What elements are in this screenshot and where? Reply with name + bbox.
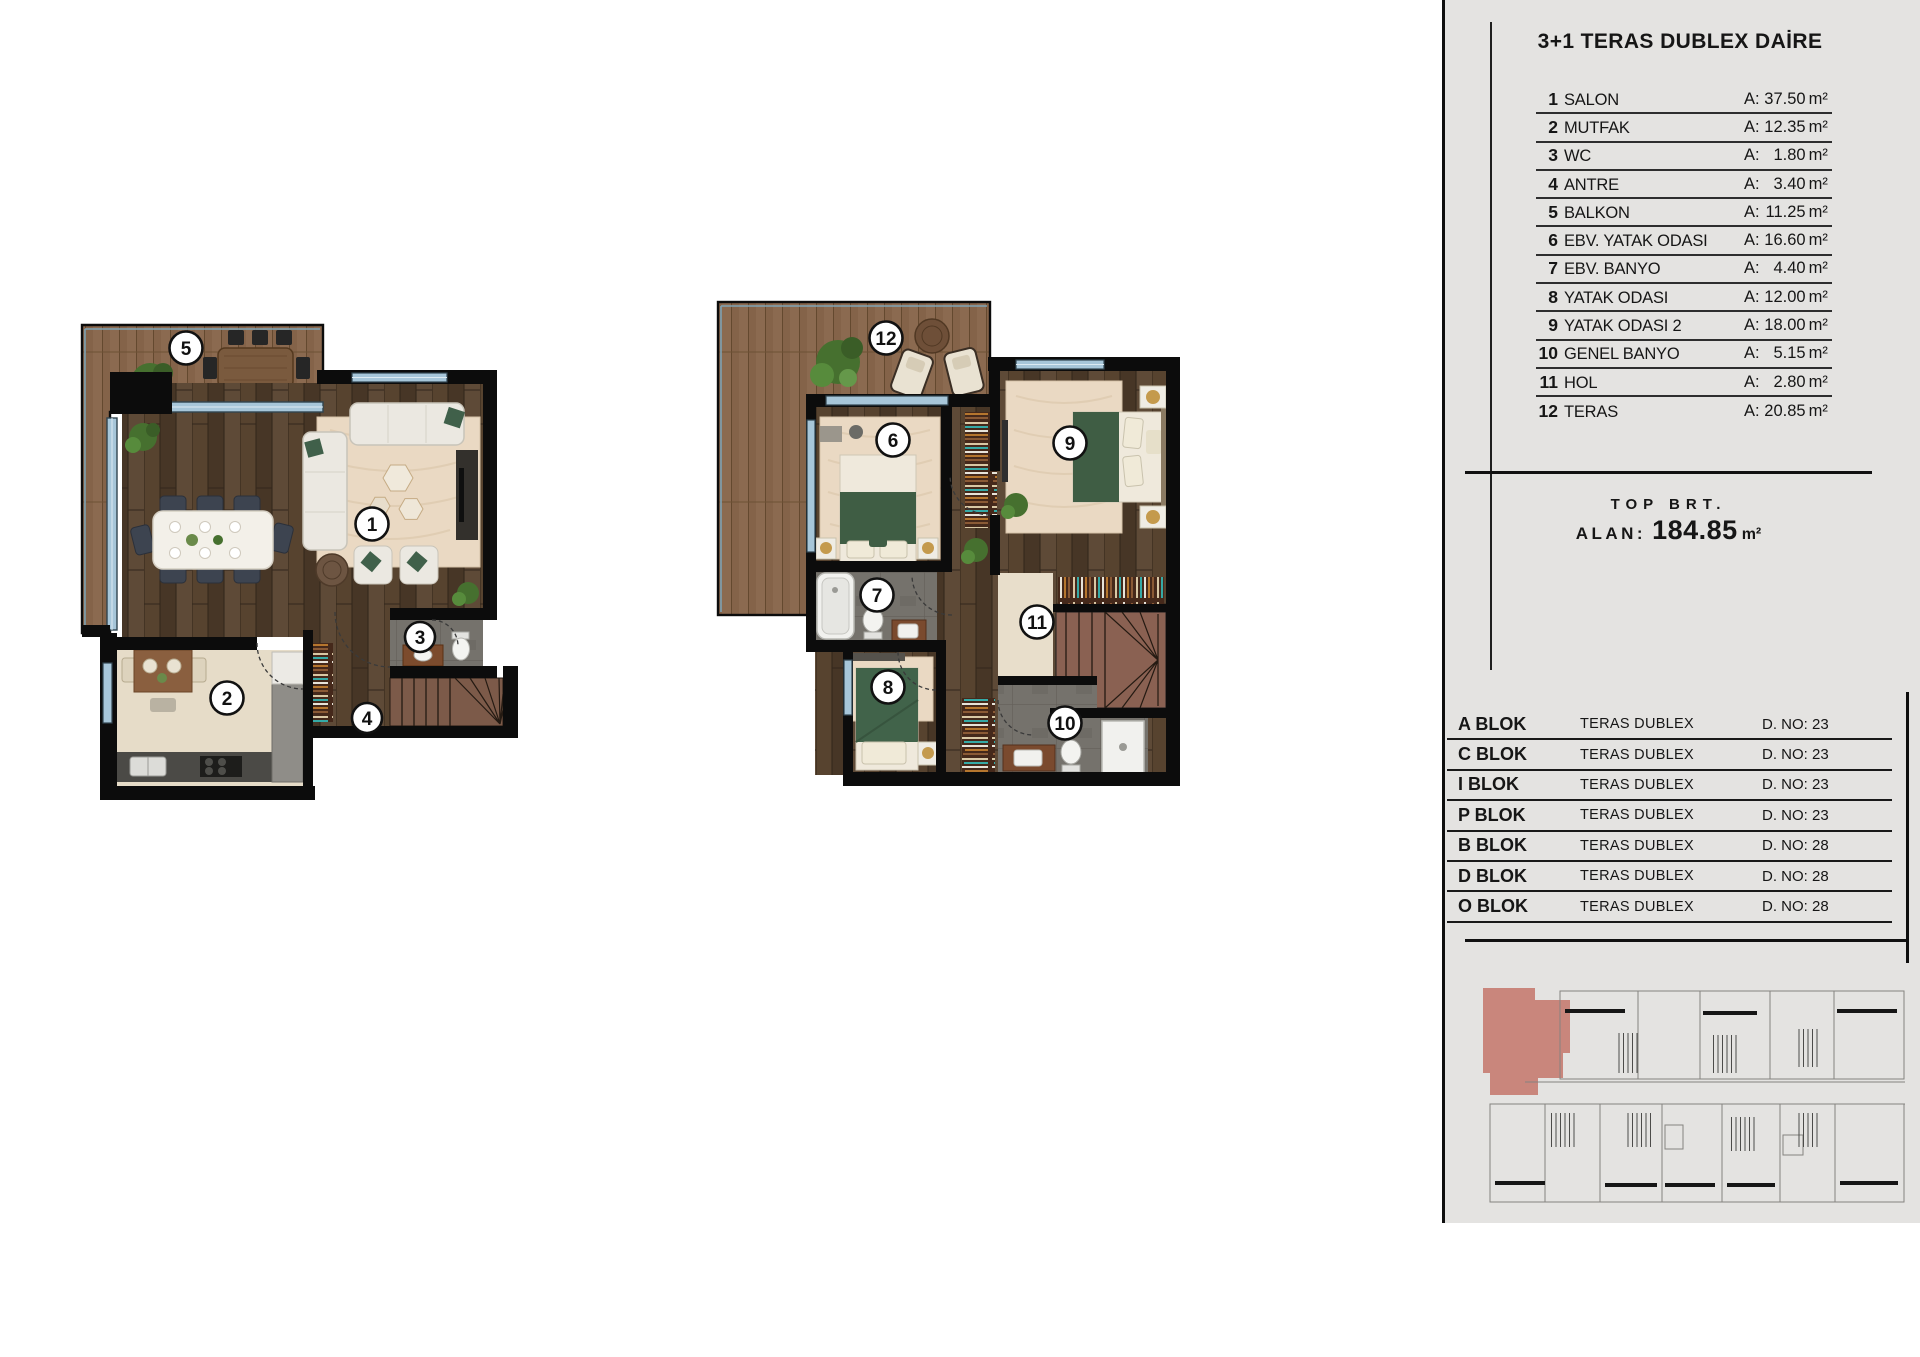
- plan1-lower-floor: 1 2 3 4 5: [82, 325, 518, 800]
- room-list-item: 5BALKONA:11.25m²: [1536, 199, 1832, 227]
- svg-text:8: 8: [883, 678, 894, 699]
- key-plan: [1465, 985, 1906, 1223]
- svg-text:10: 10: [1054, 714, 1075, 735]
- block-row: I BLOKTERAS DUBLEXD. NO: 23: [1447, 771, 1892, 801]
- room-label: 5: [170, 332, 203, 365]
- wardrobe: [962, 698, 995, 774]
- page-title: 3+1 TERAS DUBLEX DAİRE: [1465, 30, 1895, 54]
- room-list-item: 4ANTREA:3.40m²: [1536, 171, 1832, 199]
- svg-text:5: 5: [181, 339, 192, 360]
- room-list-item: 1SALONA:37.50m²: [1536, 86, 1832, 114]
- room-label: 8: [872, 671, 905, 704]
- svg-text:1: 1: [367, 515, 378, 536]
- svg-text:12: 12: [875, 329, 896, 350]
- room-label: 12: [870, 322, 903, 355]
- room-list-item: 12TERASA:20.85m²: [1536, 397, 1832, 425]
- room-list-item: 10GENEL BANYOA:5.15m²: [1536, 341, 1832, 369]
- room-label: 3: [405, 622, 435, 652]
- right-divider-line: [1906, 692, 1909, 963]
- alan-label: ALAN:: [1576, 524, 1646, 544]
- bookshelf: [1058, 577, 1164, 604]
- horizontal-divider: [1465, 471, 1872, 474]
- total-gross-label: TOP BRT.: [1465, 496, 1872, 513]
- room-label: 10: [1049, 707, 1082, 740]
- staircase: [390, 678, 503, 726]
- block-table: A BLOKTERAS DUBLEXD. NO: 23 C BLOKTERAS …: [1447, 710, 1892, 923]
- room-list-item: 2MUTFAKA:12.35m²: [1536, 114, 1832, 142]
- room-label: 6: [877, 424, 910, 457]
- svg-text:2: 2: [222, 689, 233, 710]
- bookshelf: [313, 643, 333, 722]
- room-list-item: 6EBV. YATAK ODASIA:16.60m²: [1536, 227, 1832, 255]
- plan2-upper-floor: 6 7 8 9 10 11 12: [718, 302, 1180, 786]
- svg-text:11: 11: [1027, 613, 1048, 634]
- room-list-item: 9YATAK ODASI 2A:18.00m²: [1536, 312, 1832, 340]
- room-list-item: 8YATAK ODASIA:12.00m²: [1536, 284, 1832, 312]
- inner-divider-line: [1490, 22, 1492, 670]
- block-row: C BLOKTERAS DUBLEXD. NO: 23: [1447, 740, 1892, 770]
- alan-unit: m²: [1742, 526, 1762, 544]
- room-list-item: 7EBV. BANYOA:4.40m²: [1536, 256, 1832, 284]
- room-label: 1: [356, 508, 389, 541]
- room-list-item: 11HOLA:2.80m²: [1536, 369, 1832, 397]
- alan-value: 184.85: [1652, 515, 1738, 546]
- highlighted-unit: [1483, 988, 1570, 1095]
- room-label: 4: [352, 703, 382, 733]
- svg-text:3: 3: [415, 628, 426, 649]
- bedroom-9: [1001, 381, 1168, 533]
- horizontal-divider: [1465, 939, 1906, 942]
- room-label: 11: [1021, 606, 1054, 639]
- svg-text:9: 9: [1065, 434, 1076, 455]
- wc: [390, 620, 483, 666]
- room-label: 2: [211, 682, 244, 715]
- block-row: P BLOKTERAS DUBLEXD. NO: 23: [1447, 801, 1892, 831]
- svg-text:4: 4: [362, 709, 373, 730]
- svg-text:6: 6: [888, 431, 899, 452]
- block-row: B BLOKTERAS DUBLEXD. NO: 28: [1447, 832, 1892, 862]
- total-area: ALAN: 184.85 m²: [1465, 515, 1872, 546]
- room-list: 1SALONA:37.50m² 2MUTFAKA:12.35m² 3WCA:1.…: [1536, 86, 1832, 426]
- info-panel: 3+1 TERAS DUBLEX DAİRE 1SALONA:37.50m² 2…: [1442, 0, 1920, 1223]
- block-row: A BLOKTERAS DUBLEXD. NO: 23: [1447, 710, 1892, 740]
- svg-text:7: 7: [872, 586, 883, 607]
- room-label: 7: [861, 579, 894, 612]
- room-label: 9: [1054, 427, 1087, 460]
- block-row: O BLOKTERAS DUBLEXD. NO: 28: [1447, 892, 1892, 922]
- kitchen: [117, 650, 313, 786]
- room-list-item: 3WCA:1.80m²: [1536, 143, 1832, 171]
- block-row: D BLOKTERAS DUBLEXD. NO: 28: [1447, 862, 1892, 892]
